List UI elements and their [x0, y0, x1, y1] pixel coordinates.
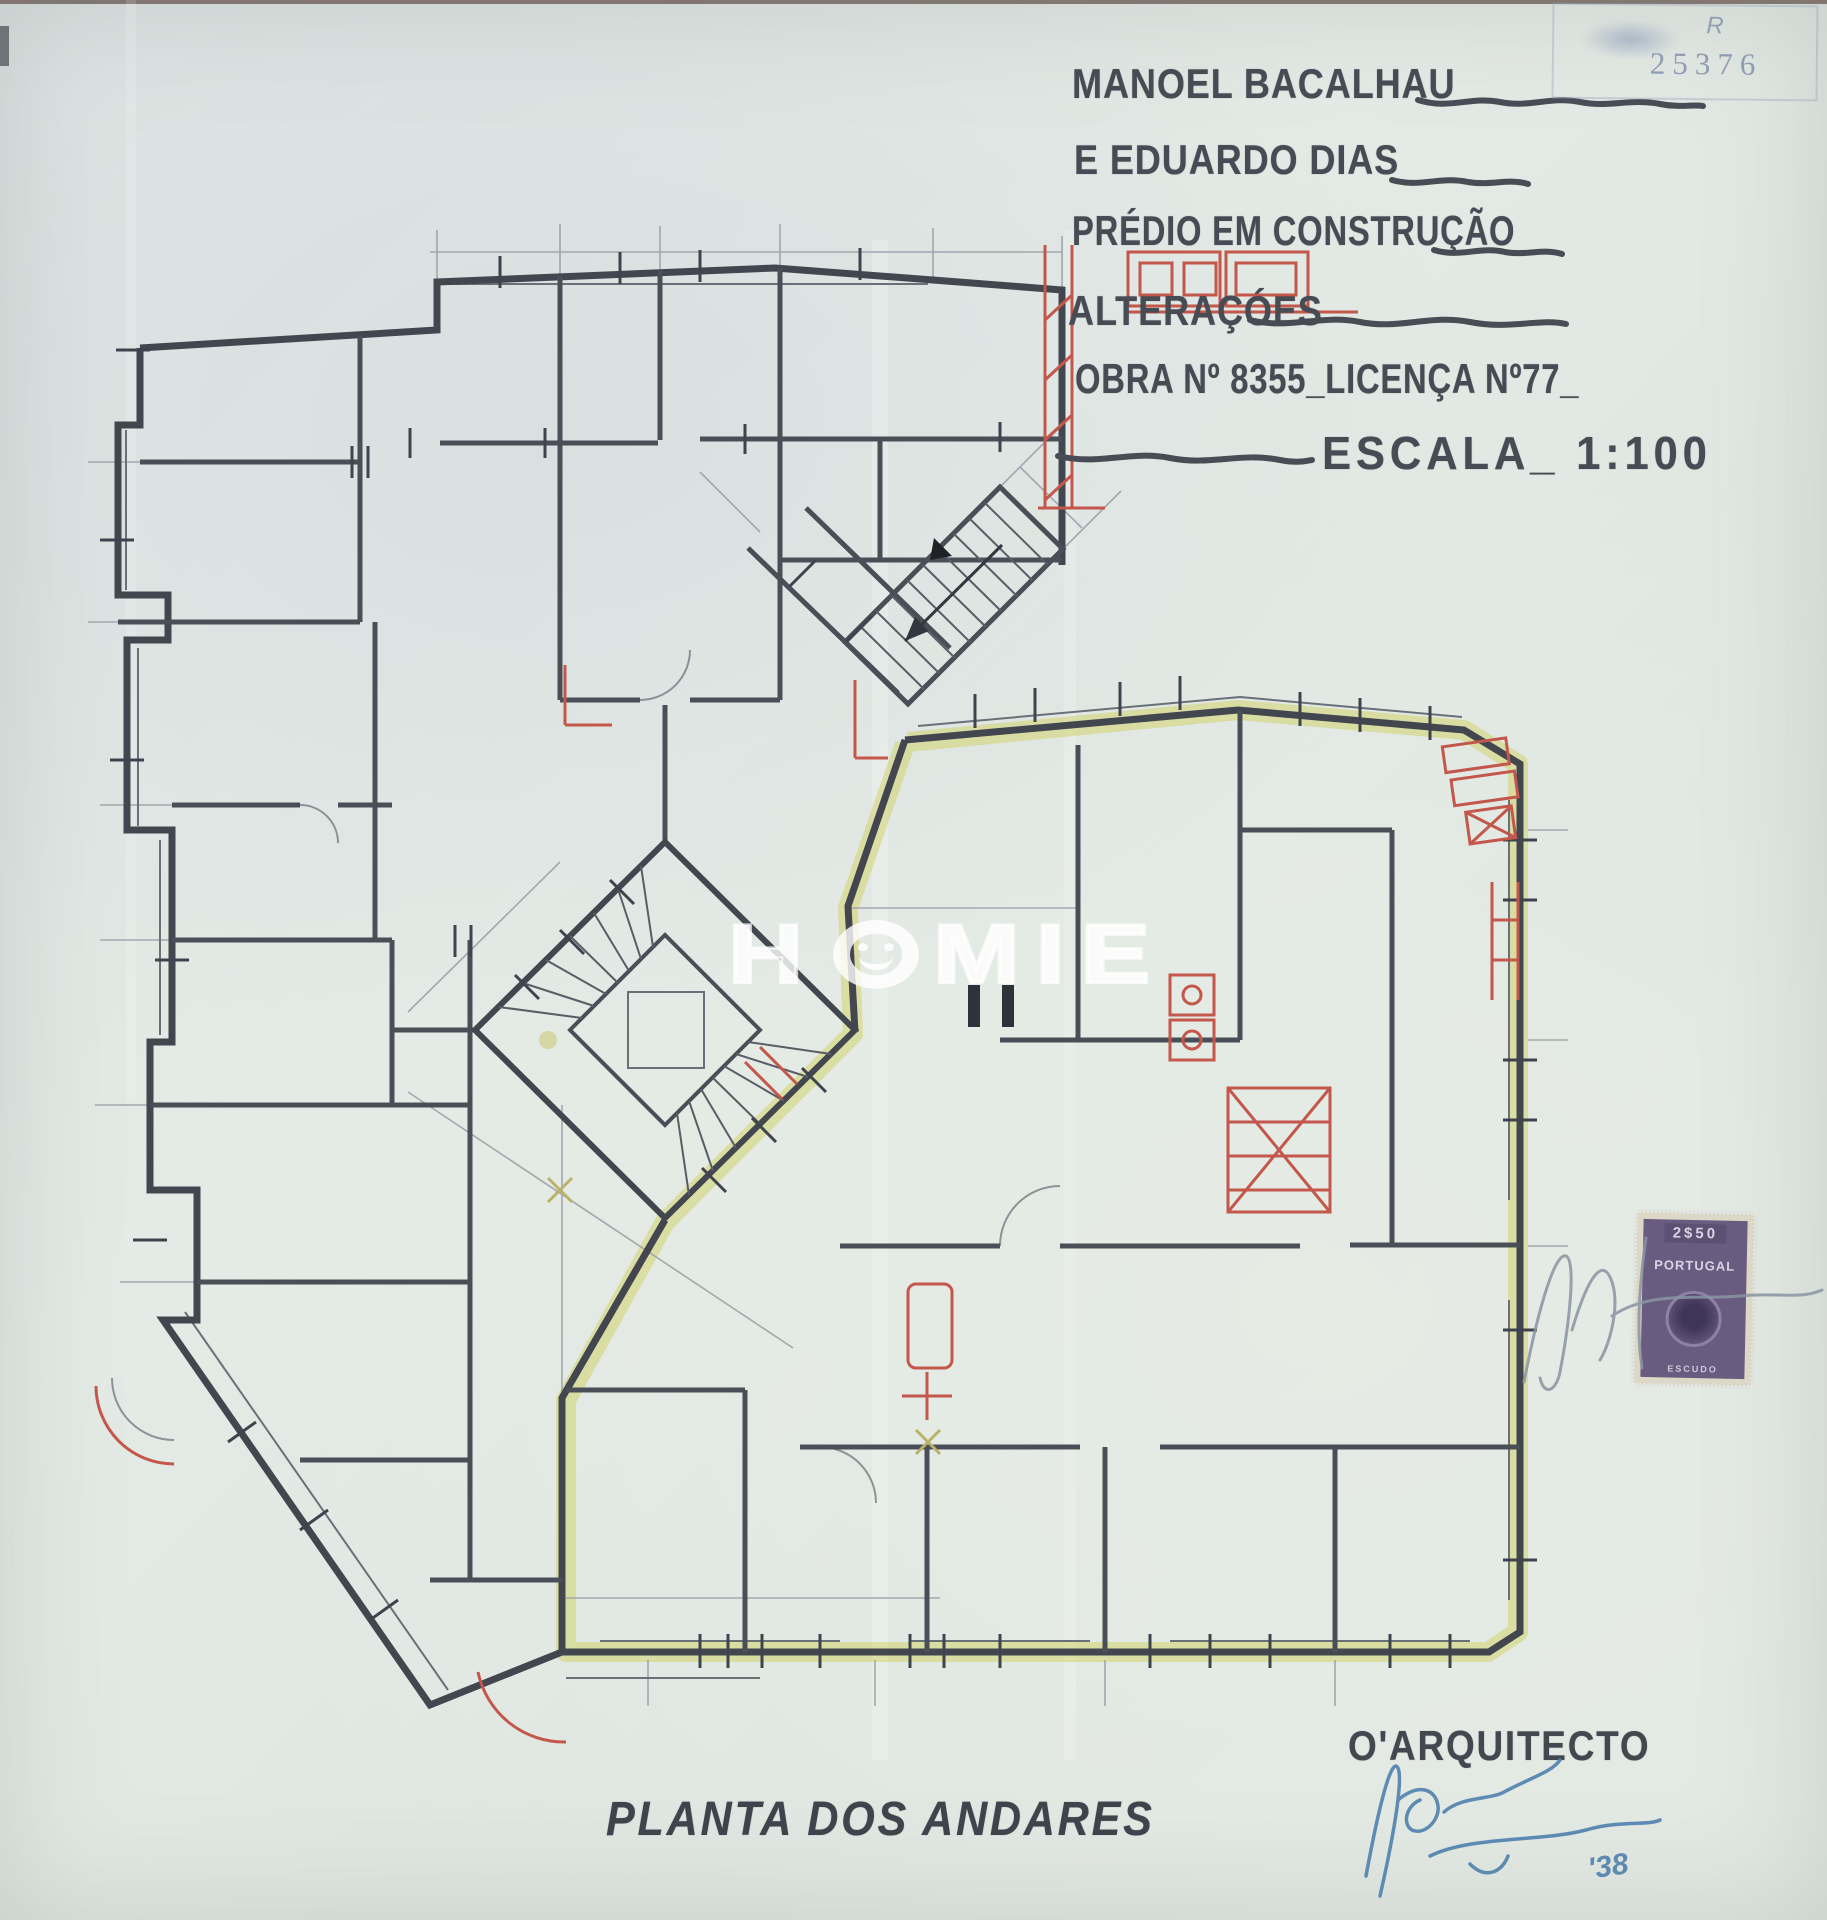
- registry-stamp-number: 25376: [1650, 46, 1763, 83]
- stair-treads-upper: [499, 866, 653, 1018]
- watermark: H MIE: [728, 916, 1166, 993]
- owner-name-line1: MANOEL BACALHAU: [1072, 60, 1455, 108]
- work-licence-line: OBRA Nº 8355_LICENÇA Nº77_: [1075, 355, 1579, 403]
- signature-year: '38: [1586, 1847, 1631, 1886]
- registry-stamp-letter: R: [1706, 12, 1724, 40]
- subject-line: PRÉDIO EM CONSTRUÇÃO: [1072, 207, 1515, 255]
- scanned-floor-plan-sheet: MANOEL BACALHAU E EDUARDO DIAS PRÉDIO EM…: [0, 0, 1827, 1920]
- revenue-stamp-country: PORTUGAL: [1654, 1257, 1735, 1274]
- revenue-stamp-serial: 2$50: [1664, 1223, 1726, 1243]
- owner-name-line2: E EDUARDO DIAS: [1074, 136, 1399, 184]
- scan-edge-mark: [0, 26, 9, 66]
- watermark-letters-mie: MIE: [933, 916, 1166, 993]
- alterations-line: ALTERAÇÓES: [1068, 287, 1323, 335]
- highlight-blob: [539, 1031, 557, 1049]
- central-stairwell: [475, 842, 855, 1218]
- registry-stamp: R 25376: [1552, 3, 1819, 102]
- plan-caption: PLANTA DOS ANDARES: [606, 1792, 1155, 1847]
- architect-label: O'ARQUITECTO: [1348, 1722, 1650, 1770]
- revenue-stamp-ink: 2$50 PORTUGAL ESCUDO: [1640, 1219, 1747, 1379]
- watermark-letter-h: H: [728, 916, 819, 993]
- unit-highlight: [566, 710, 1518, 1652]
- revenue-stamp-denomination: ESCUDO: [1667, 1363, 1718, 1374]
- watermark-smiley-o-icon: [833, 920, 919, 989]
- scale-line: ESCALA_ 1:100: [1322, 426, 1712, 480]
- revenue-stamp: 2$50 PORTUGAL ESCUDO: [1634, 1213, 1754, 1385]
- revenue-stamp-emblem-icon: [1665, 1290, 1722, 1347]
